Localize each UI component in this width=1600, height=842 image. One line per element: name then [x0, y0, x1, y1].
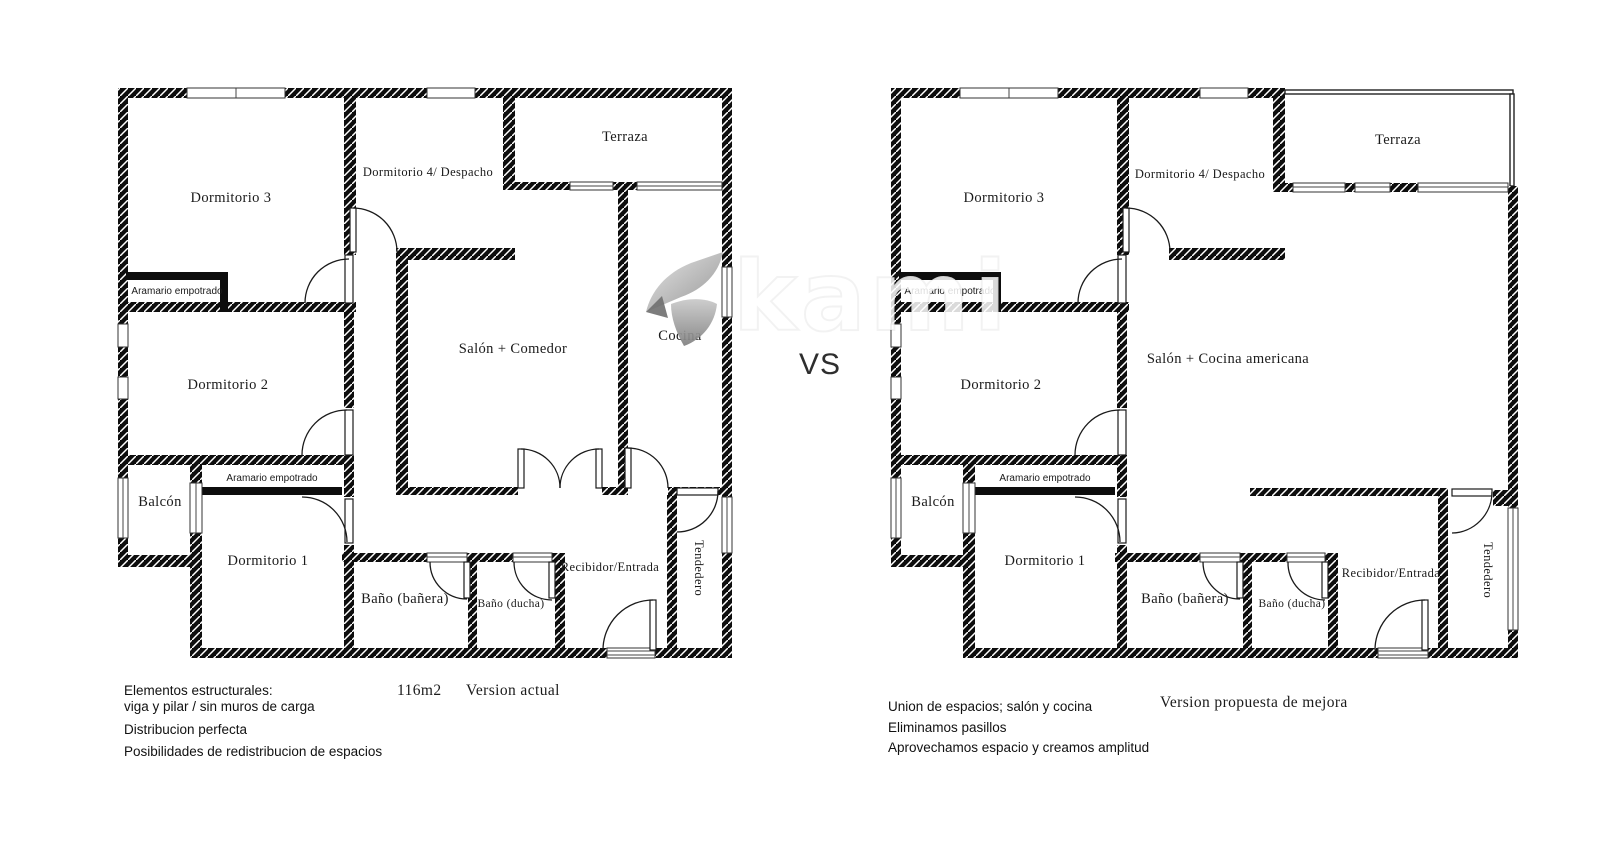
closet-label-lower: Aramario empotrado [226, 473, 318, 484]
right-plan-doors [1075, 208, 1492, 650]
room-label-dormitorio2: Dormitorio 2 [961, 377, 1042, 393]
room-label-dormitorio1: Dormitorio 1 [1005, 553, 1086, 569]
closet-label-upper: Aramario empotrado [131, 286, 223, 297]
right-plan-labels: Dormitorio 3 Dormitorio 4/ Despacho Terr… [904, 132, 1495, 610]
room-label-ducha: Baño (ducha) [1258, 598, 1325, 610]
room-label-ducha: Baño (ducha) [477, 598, 544, 610]
left-plan-doors [302, 208, 718, 650]
note-structural-1: Elementos estructurales: [124, 683, 273, 698]
note-union: Union de espacios; salón y cocina [888, 699, 1093, 714]
note-redistribution: Posibilidades de redistribucion de espac… [124, 744, 382, 759]
note-pasillos: Eliminamos pasillos [888, 720, 1007, 735]
room-label-balcon: Balcón [911, 494, 955, 510]
room-label-dormitorio4: Dormitorio 4/ Despacho [1135, 167, 1265, 181]
vs-label: VS [799, 348, 841, 381]
left-plan-notes: Elementos estructurales: viga y pilar / … [124, 682, 560, 759]
right-plan-title: Version propuesta de mejora [1160, 694, 1348, 711]
note-amplitud: Aprovechamos espacio y creamos amplitud [888, 740, 1149, 755]
closet-label-lower: Aramario empotrado [999, 473, 1091, 484]
room-label-balcon: Balcón [138, 494, 182, 510]
room-label-dormitorio3: Dormitorio 3 [191, 190, 272, 206]
floorplan-canvas: Dormitorio 3 Dormitorio 4/ Despacho Terr… [0, 0, 1600, 842]
room-label-dormitorio2: Dormitorio 2 [188, 377, 269, 393]
room-label-recibidor: Recibidor/Entrada [1342, 566, 1440, 580]
room-label-tendedero: Tendedero [692, 540, 706, 596]
note-structural-2: viga y pilar / sin muros de carga [124, 699, 315, 714]
room-label-dormitorio1: Dormitorio 1 [228, 553, 309, 569]
room-label-salon: Salón + Comedor [459, 341, 567, 357]
area-label: 116m2 [397, 682, 441, 699]
left-plan-title: Version actual [466, 682, 560, 699]
room-label-terraza: Terraza [1375, 132, 1421, 148]
room-label-dormitorio3: Dormitorio 3 [964, 190, 1045, 206]
room-label-banera: Baño (bañera) [1141, 591, 1229, 607]
room-label-terraza: Terraza [602, 129, 648, 145]
room-label-dormitorio4: Dormitorio 4/ Despacho [363, 165, 493, 179]
floorplan-comparison: Dormitorio 3 Dormitorio 4/ Despacho Terr… [0, 0, 1600, 842]
room-label-recibidor: Recibidor/Entrada [561, 560, 659, 574]
note-distribution: Distribucion perfecta [124, 722, 248, 737]
right-plan-notes: Union de espacios; salón y cocina Elimin… [888, 694, 1348, 755]
watermark-text: kami [733, 241, 1011, 353]
room-label-banera: Baño (bañera) [361, 591, 449, 607]
room-label-salon: Salón + Cocina americana [1147, 351, 1309, 367]
room-label-tendedero: Tendedero [1481, 542, 1495, 598]
